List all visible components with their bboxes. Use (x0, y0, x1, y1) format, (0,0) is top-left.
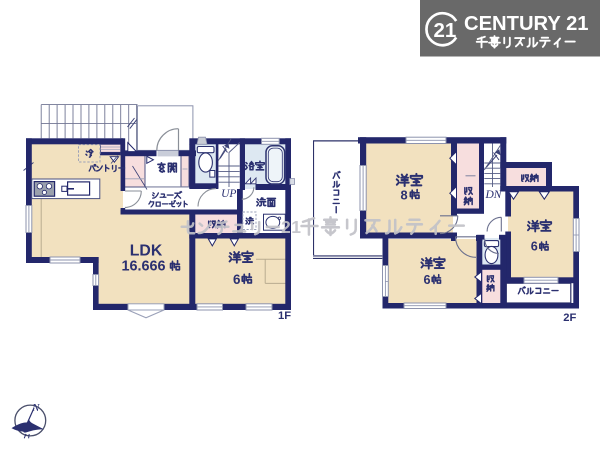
svg-text:CENTURY 21: CENTURY 21 (464, 13, 589, 35)
svg-text:2F: 2F (563, 312, 576, 324)
svg-text:LDK: LDK (130, 242, 163, 259)
svg-text:6: 6 (423, 273, 430, 287)
svg-text:6: 6 (233, 272, 240, 287)
svg-text:16.666: 16.666 (121, 258, 165, 274)
svg-text:1F: 1F (278, 310, 291, 322)
svg-text:8: 8 (400, 187, 407, 202)
svg-text:UP: UP (221, 188, 236, 200)
svg-text:21: 21 (433, 19, 456, 42)
svg-text:6: 6 (531, 240, 538, 254)
svg-text:DN: DN (485, 189, 503, 201)
svg-text:21: 21 (281, 217, 301, 237)
